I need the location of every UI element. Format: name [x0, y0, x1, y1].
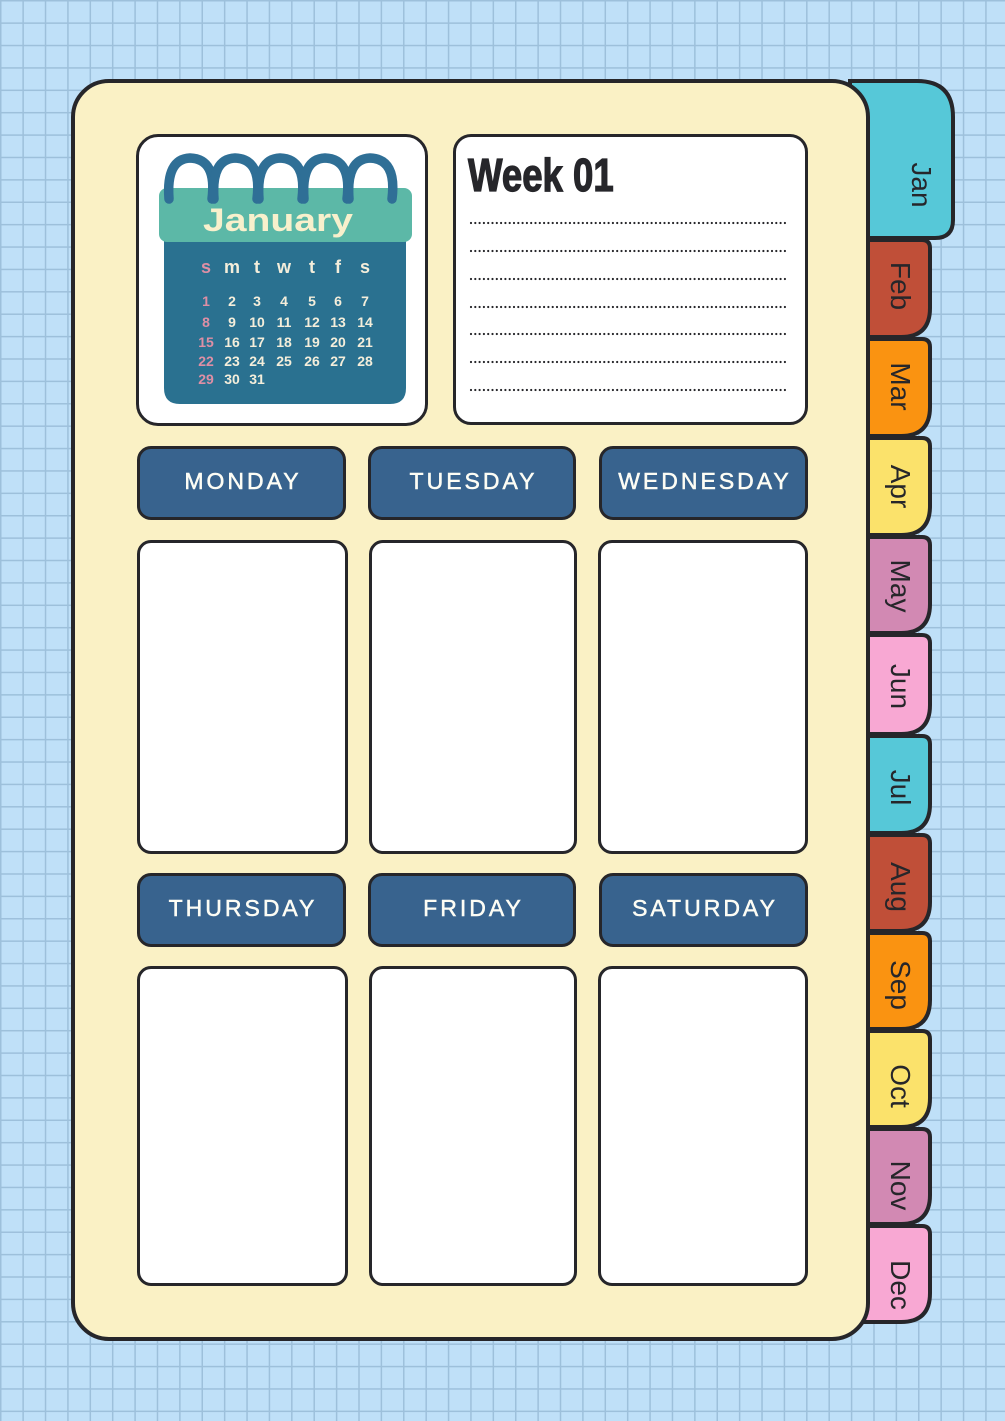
- svg-text:1: 1: [202, 293, 210, 309]
- svg-text:t: t: [309, 257, 315, 277]
- svg-text:14: 14: [357, 314, 373, 330]
- svg-text:Nov: Nov: [885, 1161, 916, 1211]
- svg-text:Apr: Apr: [885, 465, 916, 509]
- svg-text:m: m: [224, 257, 240, 277]
- svg-text:15: 15: [198, 334, 214, 350]
- svg-text:Jul: Jul: [885, 770, 916, 806]
- svg-text:23: 23: [224, 353, 240, 369]
- svg-text:6: 6: [334, 293, 342, 309]
- svg-text:31: 31: [249, 371, 265, 387]
- svg-text:w: w: [276, 257, 292, 277]
- svg-text:Oct: Oct: [885, 1064, 916, 1108]
- svg-text:19: 19: [304, 334, 320, 350]
- svg-text:May: May: [885, 560, 916, 613]
- svg-text:s: s: [201, 257, 211, 277]
- svg-text:18: 18: [276, 334, 292, 350]
- svg-text:16: 16: [224, 334, 240, 350]
- svg-text:9: 9: [228, 314, 236, 330]
- svg-text:30: 30: [224, 371, 240, 387]
- svg-text:22: 22: [198, 353, 214, 369]
- svg-text:25: 25: [276, 353, 292, 369]
- svg-text:11: 11: [277, 314, 292, 330]
- svg-text:Aug: Aug: [885, 862, 916, 912]
- svg-text:f: f: [335, 257, 342, 277]
- svg-text:13: 13: [330, 314, 346, 330]
- svg-text:3: 3: [253, 293, 261, 309]
- svg-text:Feb: Feb: [885, 262, 916, 310]
- svg-text:Jun: Jun: [885, 664, 916, 709]
- svg-text:t: t: [254, 257, 260, 277]
- svg-text:Jan: Jan: [906, 162, 937, 207]
- svg-text:10: 10: [249, 314, 265, 330]
- svg-text:Sep: Sep: [885, 960, 916, 1010]
- svg-text:8: 8: [202, 314, 210, 330]
- svg-text:s: s: [360, 257, 370, 277]
- svg-text:26: 26: [304, 353, 320, 369]
- svg-text:Dec: Dec: [885, 1260, 916, 1310]
- svg-text:7: 7: [361, 293, 369, 309]
- svg-text:28: 28: [357, 353, 373, 369]
- svg-text:2: 2: [228, 293, 236, 309]
- svg-text:12: 12: [304, 314, 320, 330]
- svg-text:Mar: Mar: [885, 362, 916, 410]
- svg-text:20: 20: [330, 334, 346, 350]
- svg-text:27: 27: [330, 353, 346, 369]
- svg-text:29: 29: [198, 371, 214, 387]
- svg-text:January: January: [203, 202, 353, 238]
- svg-text:5: 5: [308, 293, 316, 309]
- svg-text:17: 17: [249, 334, 265, 350]
- svg-text:21: 21: [357, 334, 373, 350]
- svg-text:4: 4: [280, 293, 288, 309]
- svg-text:24: 24: [249, 353, 265, 369]
